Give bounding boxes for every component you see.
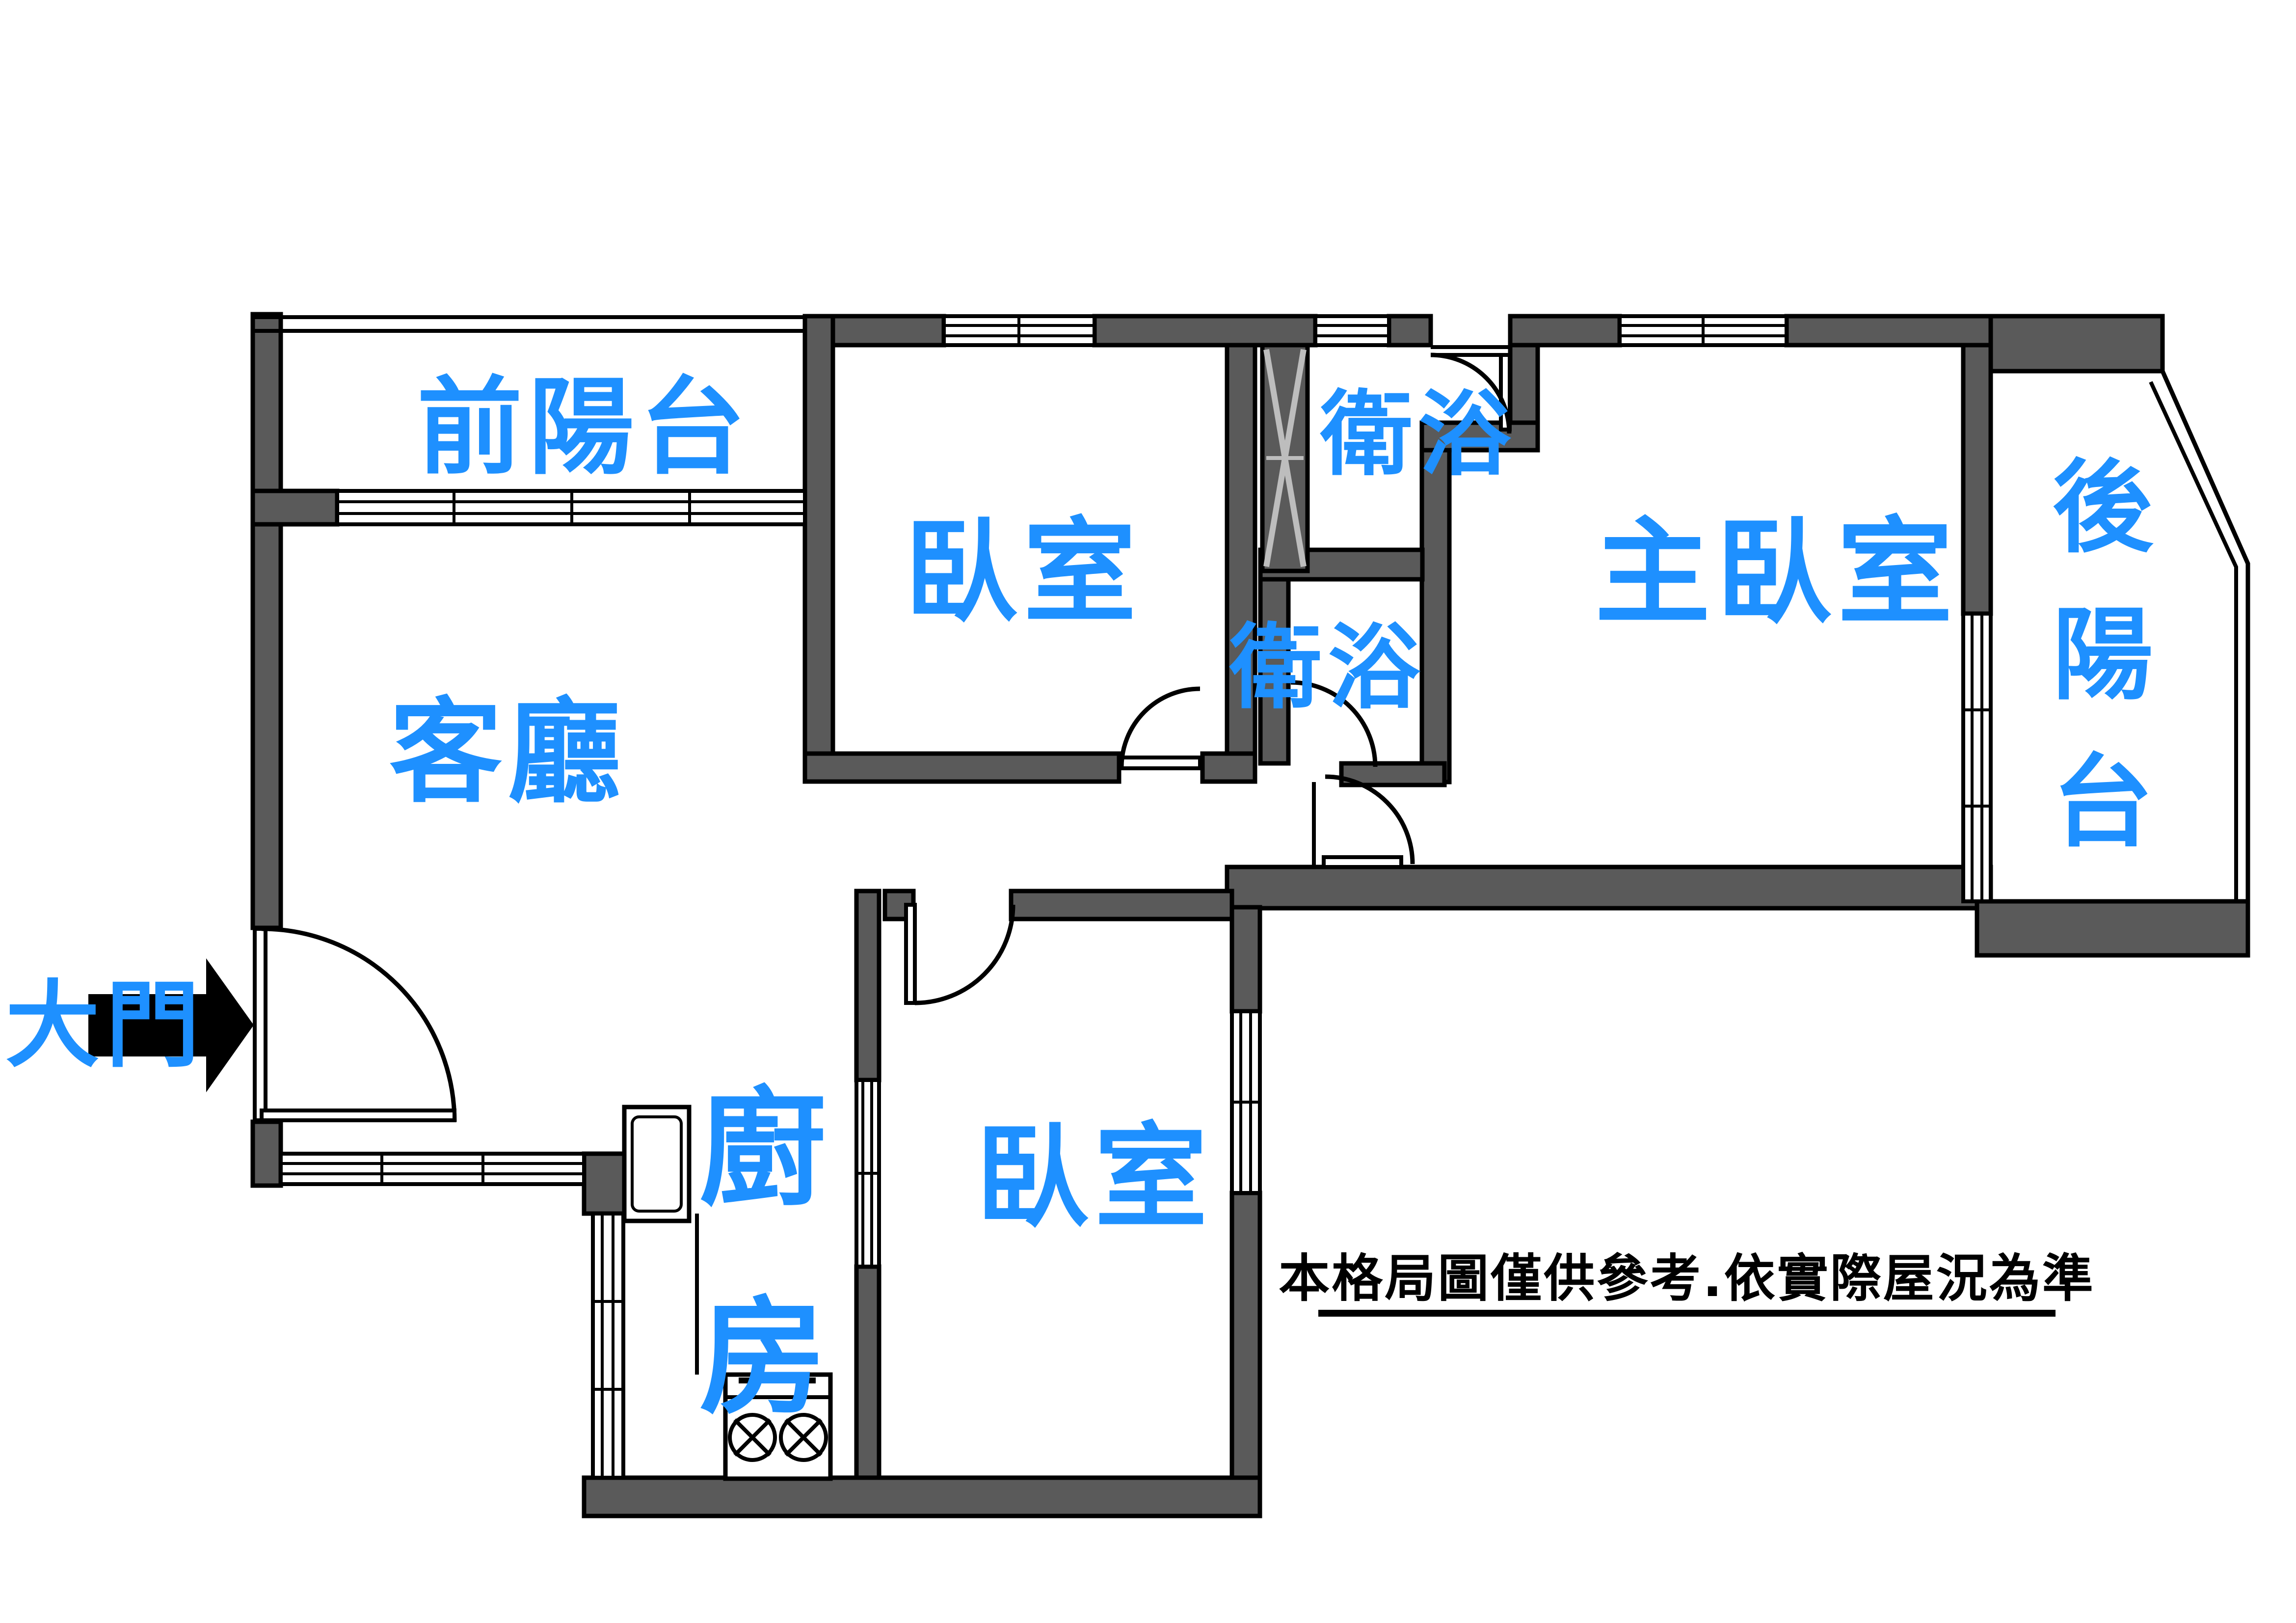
window-master-top	[1620, 316, 1787, 345]
disclaimer-note: 本格局圖僅供參考.依實際屋況為準	[1279, 1248, 2095, 1317]
label-living-room: 客廳	[389, 687, 627, 818]
door-hallway	[1314, 777, 1413, 867]
label-bath-upper: 衛浴	[1320, 381, 1517, 488]
label-bedroom-top: 臥室	[905, 507, 1142, 638]
svg-text:陽: 陽	[2053, 597, 2159, 714]
window-living-bottom-left	[281, 1154, 584, 1184]
label-entrance: 大門	[5, 971, 206, 1081]
duct-shaft	[1262, 345, 1308, 571]
door-bedroom-top	[1121, 689, 1200, 768]
window-master-back-balcony	[1963, 614, 1991, 901]
svg-text:廚: 廚	[699, 1076, 832, 1223]
door-bedroom-bottom	[906, 905, 1013, 1003]
disclaimer-underline	[1318, 1310, 2056, 1317]
label-front-balcony: 前陽台	[417, 366, 751, 489]
floor-plan-drawing: 前陽台 客廳 臥室 衛浴 衛浴 主臥室 後 陽 台 廚 房 臥室 大門 本格局圖…	[0, 0, 2296, 1623]
kitchen-sink	[624, 1107, 689, 1221]
label-bath-lower: 衛浴	[1229, 614, 1426, 722]
back-balcony-parapet	[2151, 371, 2248, 903]
window-bedroom-top	[944, 316, 1095, 345]
disclaimer-text: 本格局圖僅供參考.依實際屋況為準	[1279, 1248, 2095, 1308]
front-balcony-parapet	[253, 317, 805, 331]
door-entrance	[255, 929, 454, 1122]
svg-text:房: 房	[699, 1284, 832, 1432]
window-bedroom-bottom-right	[1232, 1011, 1260, 1193]
window-living-front-balcony	[337, 491, 805, 524]
window-kitchen-left	[593, 1214, 623, 1478]
svg-text:後: 後	[2053, 450, 2159, 567]
svg-text:台: 台	[2053, 744, 2159, 861]
label-back-balcony: 後 陽 台	[2053, 450, 2159, 861]
window-bath-upper	[1315, 316, 1389, 345]
label-bedroom-bottom: 臥室	[976, 1112, 1213, 1244]
label-master-bedroom: 主臥室	[1595, 506, 1959, 640]
window-kitchen-bedroom	[856, 1080, 879, 1267]
label-kitchen: 廚 房	[699, 1076, 832, 1432]
floor-plan-canvas: 前陽台 客廳 臥室 衛浴 衛浴 主臥室 後 陽 台 廚 房 臥室 大門 本格局圖…	[0, 0, 2296, 1623]
